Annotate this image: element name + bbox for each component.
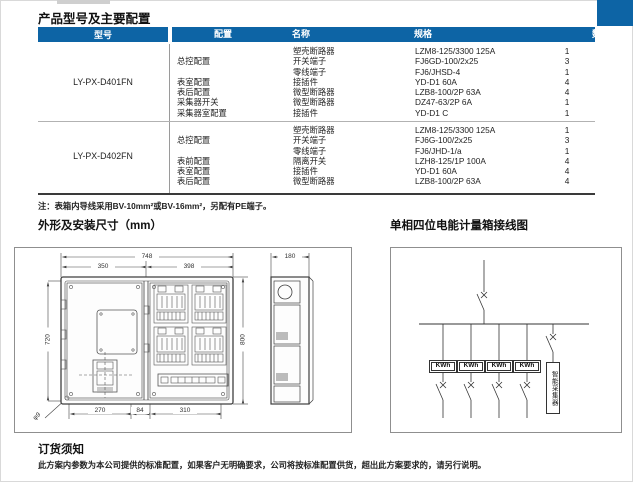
spec-cell: YD-D1 60A — [415, 77, 457, 87]
spec-cell: LZB8-100/2P 63A — [415, 176, 481, 186]
wiring-section-title: 单相四位电能计量箱接线图 — [390, 217, 528, 233]
wiring-lines — [419, 260, 589, 418]
qty-cell: 4 — [555, 77, 579, 87]
qty-cell: 1 — [555, 67, 579, 77]
table-row: 表室配置 接插件 YD-D1 60A 4 — [169, 166, 595, 176]
table-row: 总控配置 开关端子 FJ6GD-100/2x25 3 — [169, 56, 595, 66]
qty-cell: 3 — [555, 56, 579, 66]
config-cell: 采集器开关 — [177, 97, 219, 107]
table-header-model: 型号 — [38, 27, 168, 42]
wiring-diagram — [391, 248, 621, 432]
spec-cell: LZH8-125/1P 100A — [415, 156, 486, 166]
qty-cell: 1 — [555, 108, 579, 118]
name-cell: 隔离开关 — [293, 156, 326, 166]
group-separator — [38, 121, 595, 122]
dim-height-inner: 720 — [45, 328, 52, 352]
page-title: 产品型号及主要配置 — [38, 8, 151, 27]
name-cell: 开关端子 — [293, 56, 326, 66]
table-row: 塑壳断路器 LZM8-125/3300 125A 1 — [169, 125, 595, 135]
dim-bottom-mid: 84 — [131, 407, 149, 414]
group-rows: 塑壳断路器 LZM8-125/3300 125A 1 总控配置 开关端子 FJ6… — [169, 46, 595, 118]
kwh-meter-label: KWh — [431, 362, 455, 371]
table-header-config: 配置 — [214, 27, 232, 42]
spec-cell: DZ47-63/2P 6A — [415, 97, 472, 107]
spec-cell: FJ6GD-100/2x25 — [415, 56, 478, 66]
name-cell: 微型断路器 — [293, 176, 335, 186]
spec-cell: FJ6G-100/2x25 — [415, 135, 472, 145]
wiring-note: 注：表箱内导线采用BV-10mm²或BV-16mm²，另配有PE端子。 — [38, 200, 271, 212]
dim-left-width: 350 — [91, 263, 115, 270]
group-rows: 塑壳断路器 LZM8-125/3300 125A 1 总控配置 开关端子 FJ6… — [169, 125, 595, 187]
dimension-drawing-panel: 748 350 398 180 800 720 270 84 310 φ9 — [14, 247, 352, 433]
table-header-name: 名称 — [292, 27, 310, 42]
table-row: 零线端子 FJ6/JHD-1/a 1 — [169, 146, 595, 156]
name-cell: 塑壳断路器 — [293, 46, 335, 56]
product-group-d401fn: LY-PX-D401FN 塑壳断路器 LZM8-125/3300 125A 1 … — [38, 45, 595, 119]
dimensions-section-title: 外形及安装尺寸（mm） — [38, 217, 162, 233]
qty-cell: 1 — [555, 125, 579, 135]
qty-cell: 1 — [555, 46, 579, 56]
name-cell: 接插件 — [293, 166, 318, 176]
name-cell: 零线端子 — [293, 146, 326, 156]
table-row: 采集器开关 微型断路器 DZ47-63/2P 6A 1 — [169, 97, 595, 107]
spec-cell: FJ6/JHD-1/a — [415, 146, 462, 156]
config-cell: 表室配置 — [177, 166, 210, 176]
table-row: 表后配置 微型断路器 LZB8-100/2P 63A 4 — [169, 87, 595, 97]
kwh-meter: KWh — [429, 360, 457, 373]
dim-bottom-right: 310 — [173, 407, 197, 414]
spec-table: 型号 配置 名称 规格 数量 LY-PX-D401FN 塑壳断路器 LZM8-1… — [38, 27, 595, 197]
spec-cell: LZB8-100/2P 63A — [415, 87, 481, 97]
table-row: 表后配置 微型断路器 LZB8-100/2P 63A 4 — [169, 176, 595, 186]
table-row: 零线端子 FJ6/JHSD-4 1 — [169, 67, 595, 77]
spec-cell: FJ6/JHSD-4 — [415, 67, 460, 77]
table-row: 表前配置 隔离开关 LZH8-125/1P 100A 4 — [169, 156, 595, 166]
top-tab-decoration — [57, 0, 110, 4]
name-cell: 接插件 — [293, 77, 318, 87]
qty-cell: 4 — [555, 166, 579, 176]
model-number: LY-PX-D401FN — [38, 45, 168, 119]
spec-cell: LZM8-125/3300 125A — [415, 46, 495, 56]
name-cell: 塑壳断路器 — [293, 125, 335, 135]
side-view — [271, 277, 313, 404]
qty-cell: 3 — [555, 135, 579, 145]
kwh-meter-label: KWh — [459, 362, 483, 371]
spec-cell: YD-D1 60A — [415, 166, 457, 176]
table-header-spec: 规格 — [414, 27, 432, 42]
kwh-meter-label: KWh — [487, 362, 511, 371]
name-cell: 零线端子 — [293, 67, 326, 77]
table-row: 塑壳断路器 LZM8-125/3300 125A 1 — [169, 46, 595, 56]
collector-box: 智能采集器 — [546, 362, 560, 414]
name-cell: 微型断路器 — [293, 97, 335, 107]
config-cell: 表后配置 — [177, 87, 210, 97]
wiring-diagram-panel: KWh KWh KWh KWh 智能采集器 — [390, 247, 622, 433]
model-number: LY-PX-D402FN — [38, 124, 168, 188]
dim-right-width: 398 — [177, 263, 201, 270]
kwh-meter: KWh — [485, 360, 513, 373]
table-row: 总控配置 开关端子 FJ6G-100/2x25 3 — [169, 135, 595, 145]
name-cell: 开关端子 — [293, 135, 326, 145]
table-bottom-rule — [38, 193, 595, 195]
kwh-meter: KWh — [513, 360, 541, 373]
spec-cell: YD-D1 C — [415, 108, 448, 118]
order-notice-text: 此方案内参数为本公司提供的标准配置，如果客户无明确要求，公司将按标准配置供货，超… — [38, 459, 613, 471]
product-group-d402fn: LY-PX-D402FN 塑壳断路器 LZM8-125/3300 125A 1 … — [38, 124, 595, 188]
table-header-qty: 数量 — [592, 27, 601, 42]
table-header-right-block: 配置 名称 规格 数量 — [172, 27, 595, 42]
config-cell: 表室配置 — [177, 77, 210, 87]
dim-depth: 180 — [278, 253, 302, 260]
qty-cell: 1 — [555, 97, 579, 107]
qty-cell: 4 — [555, 156, 579, 166]
qty-cell: 4 — [555, 87, 579, 97]
dim-bottom-left: 270 — [88, 407, 112, 414]
config-cell: 表后配置 — [177, 176, 210, 186]
config-cell: 采集器室配置 — [177, 108, 227, 118]
qty-cell: 4 — [555, 176, 579, 186]
dim-height-outer: 800 — [240, 328, 247, 352]
qty-cell: 1 — [555, 146, 579, 156]
kwh-meter: KWh — [457, 360, 485, 373]
config-cell: 总控配置 — [177, 56, 210, 66]
name-cell: 微型断路器 — [293, 87, 335, 97]
spec-cell: LZM8-125/3300 125A — [415, 125, 495, 135]
table-row: 表室配置 接插件 YD-D1 60A 4 — [169, 77, 595, 87]
config-cell: 总控配置 — [177, 135, 210, 145]
config-cell: 表前配置 — [177, 156, 210, 166]
catalog-page: 产品型号及主要配置 型号 配置 名称 规格 数量 LY-PX-D401FN 塑壳… — [0, 0, 633, 482]
order-notice-heading: 订货须知 — [38, 441, 84, 457]
front-view — [61, 277, 233, 404]
corner-accent-block — [597, 0, 633, 26]
kwh-meter-label: KWh — [515, 362, 539, 371]
dim-total-width: 748 — [135, 253, 159, 260]
table-row: 采集器室配置 接插件 YD-D1 C 1 — [169, 108, 595, 118]
name-cell: 接插件 — [293, 108, 318, 118]
